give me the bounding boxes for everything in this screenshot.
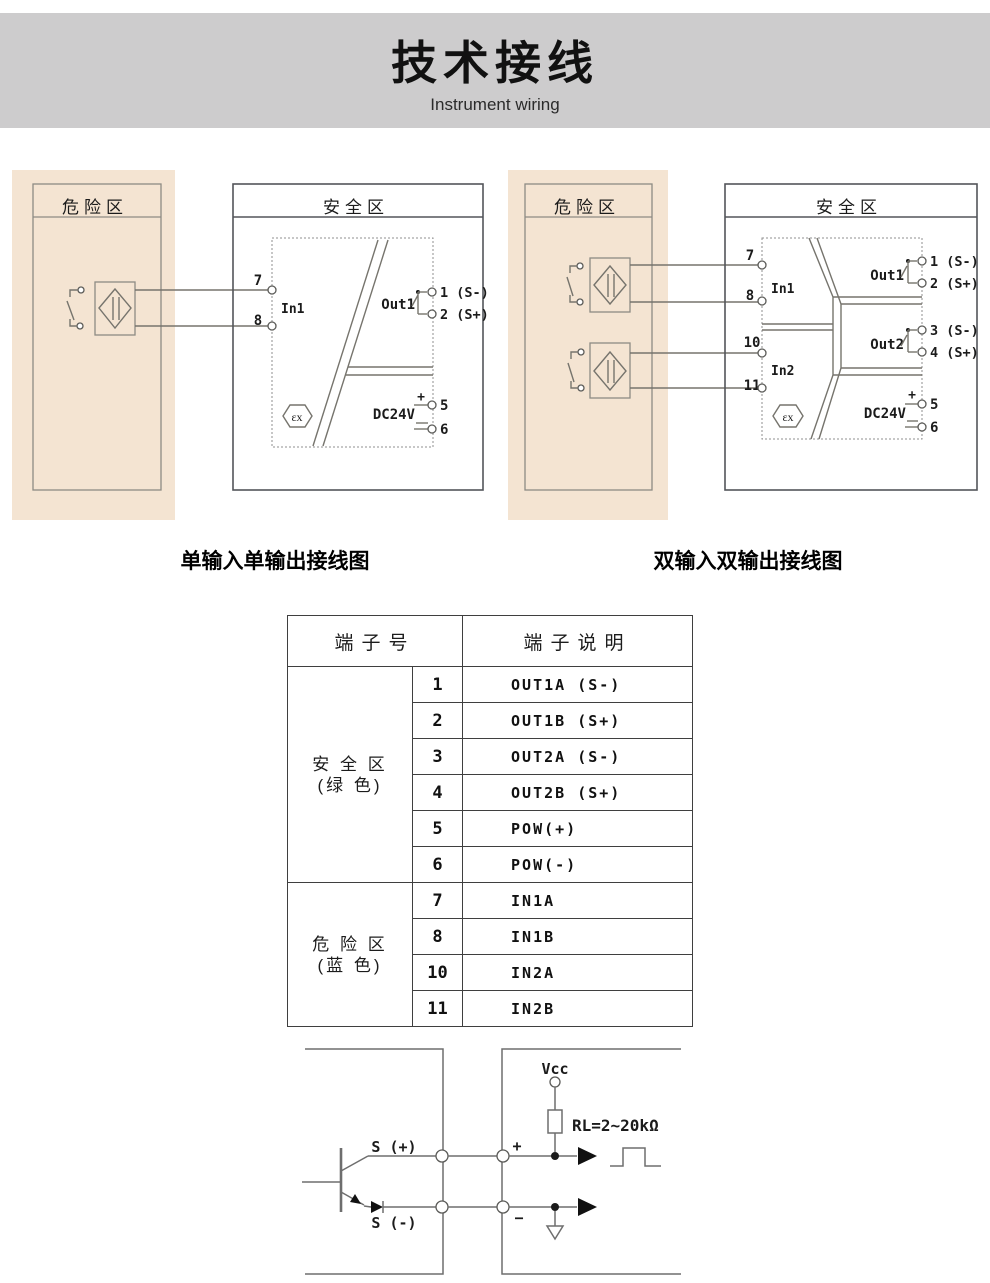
terminal-5-label: 5	[440, 398, 448, 414]
power-plus-sign: +	[417, 390, 425, 405]
terminal-number: 1	[413, 667, 463, 703]
input-2-label: In2	[771, 364, 794, 379]
terminal-6-circle	[918, 423, 926, 431]
page-title: 技术接线	[391, 27, 599, 93]
input-terminals: 7 In1 8 10 In2 11	[744, 248, 795, 394]
terminal-6-label: 6	[440, 422, 448, 438]
rl-value-label: RL=2~20kΩ	[572, 1116, 659, 1135]
safe-zone-group-cell: 安 全 区 (绿 色)	[288, 667, 413, 883]
pulse-waveform-icon	[610, 1148, 661, 1166]
terminal-2-circle	[918, 279, 926, 287]
terminal-8-circle	[758, 297, 766, 305]
vcc-terminal-circle	[550, 1077, 560, 1087]
terminal-desc: IN2B	[463, 991, 693, 1027]
header-band: 技术接线 Instrument wiring	[0, 13, 990, 128]
output-circuit-diagram: S (+) S (-) + − Vcc RL=2~20kΩ	[280, 1040, 720, 1283]
load-terminal-minus-circle	[497, 1201, 509, 1213]
terminal-1-circle	[918, 257, 926, 265]
page-subtitle: Instrument wiring	[430, 95, 559, 115]
input-1-label: In1	[281, 302, 305, 317]
dual-io-wiring-diagram: 危险区	[500, 160, 990, 580]
output-1-terminals: Out1 1 (S-) 2 (S+)	[381, 285, 489, 323]
terminal-desc: IN1A	[463, 883, 693, 919]
safe-zone-right: 安全区 7 In1 8 10 In2 11 Out1	[725, 184, 979, 490]
power-plus-sign: +	[908, 388, 916, 403]
hazard-zone-right: 危险区	[508, 170, 758, 520]
caption-single-io: 单输入单输出接线图	[115, 545, 435, 575]
terminal-desc: OUT1B (S+)	[463, 703, 693, 739]
s-plus-label: S (+)	[371, 1138, 416, 1156]
hazard-zone-label: 危险区	[554, 198, 620, 217]
power-label: DC24V	[373, 407, 416, 423]
hazard-zone-left: 危险区	[12, 170, 268, 520]
terminal-7-label: 7	[254, 273, 262, 289]
terminal-number: 7	[413, 883, 463, 919]
safe-zone-label: 安全区	[816, 198, 882, 217]
terminal-5-circle	[428, 401, 436, 409]
transistor-icon	[302, 1148, 368, 1212]
vcc-label: Vcc	[541, 1060, 568, 1078]
terminal-number: 5	[413, 811, 463, 847]
hazard-zone-group-cell: 危 险 区 (蓝 色)	[288, 883, 413, 1027]
power-terminals: DC24V + 5 6	[864, 388, 939, 436]
signal-arrow-plus-icon	[578, 1147, 597, 1165]
terminal-desc: POW(-)	[463, 847, 693, 883]
pullup-resistor: Vcc RL=2~20kΩ	[541, 1060, 658, 1152]
terminal-7-label: 7	[746, 248, 754, 264]
terminal-desc: IN1B	[463, 919, 693, 955]
hazard-zone-background	[12, 170, 175, 520]
terminal-number: 4	[413, 775, 463, 811]
terminal-10-label: 10	[744, 335, 761, 351]
terminal-7-circle	[268, 286, 276, 294]
terminal-desc: OUT2A (S-)	[463, 739, 693, 775]
group-label-line1: 安 全 区	[288, 754, 412, 775]
terminal-1-label: 1 (S-)	[930, 254, 979, 270]
terminal-8-label: 8	[254, 313, 262, 329]
output-2-terminals: Out2 3 (S-) 4 (S+)	[870, 323, 979, 361]
load-terminal-plus-circle	[497, 1150, 509, 1162]
power-terminals: DC24V + 5 6	[373, 390, 449, 438]
sensor-side-box	[305, 1049, 443, 1274]
terminal-number: 2	[413, 703, 463, 739]
terminal-1-circle	[428, 288, 436, 296]
table-header-row: 端子号 端子说明	[288, 616, 693, 667]
terminal-number: 6	[413, 847, 463, 883]
table-row: 安 全 区 (绿 色) 1 OUT1A (S-)	[288, 667, 693, 703]
terminal-2-label: 2 (S+)	[930, 276, 979, 292]
plus-sign: +	[512, 1137, 521, 1155]
terminal-desc: OUT2B (S+)	[463, 775, 693, 811]
power-label: DC24V	[864, 406, 907, 422]
load-side-box	[502, 1049, 681, 1274]
terminal-desc: OUT1A (S-)	[463, 667, 693, 703]
minus-sign: −	[514, 1209, 523, 1227]
diode-icon	[364, 1201, 436, 1213]
terminal-number: 3	[413, 739, 463, 775]
input-terminals: 7 In1 8	[254, 273, 305, 330]
terminal-5-circle	[918, 400, 926, 408]
sensor-terminal-plus-circle	[436, 1150, 448, 1162]
terminal-2-label: 2 (S+)	[440, 307, 489, 323]
terminal-8-circle	[268, 322, 276, 330]
safe-zone-label: 安全区	[323, 198, 389, 217]
terminal-4-circle	[918, 348, 926, 356]
terminal-11-circle	[758, 384, 766, 392]
safe-zone-left: 安全区 7 In1 8 Out1	[233, 184, 489, 490]
junction-dot-plus	[551, 1152, 559, 1160]
terminal-5-label: 5	[930, 397, 938, 413]
resistor-icon	[548, 1110, 562, 1133]
terminal-desc: IN2A	[463, 955, 693, 991]
terminal-6-circle	[428, 425, 436, 433]
group-label-line2: (绿 色)	[288, 775, 412, 796]
group-label-line2: (蓝 色)	[288, 955, 412, 976]
terminal-desc-header: 端子说明	[463, 616, 693, 667]
terminal-3-label: 3 (S-)	[930, 323, 979, 339]
terminal-7-circle	[758, 261, 766, 269]
hazard-zone-background	[508, 170, 668, 520]
s-minus-label: S (-)	[371, 1214, 416, 1232]
terminal-table: 端子号 端子说明 安 全 区 (绿 色) 1 OUT1A (S-) 2 OUT1…	[287, 615, 693, 1027]
ex-icon-text: εx	[291, 410, 302, 424]
signal-arrow-minus-icon	[578, 1198, 597, 1216]
group-label-line1: 危 险 区	[288, 934, 412, 955]
ex-certification-icon: εx	[283, 405, 312, 427]
terminal-number: 11	[413, 991, 463, 1027]
terminal-6-label: 6	[930, 420, 938, 436]
table-row: 危 险 区 (蓝 色) 7 IN1A	[288, 883, 693, 919]
terminal-4-label: 4 (S+)	[930, 345, 979, 361]
terminal-8-label: 8	[746, 288, 754, 304]
junction-dot-minus	[551, 1203, 559, 1211]
terminal-2-circle	[428, 310, 436, 318]
terminal-number: 10	[413, 955, 463, 991]
single-io-wiring-diagram: 危险区 安全区	[0, 160, 500, 580]
out2-label: Out2	[870, 337, 904, 353]
terminal-desc: POW(+)	[463, 811, 693, 847]
output-1-terminals: Out1 1 (S-) 2 (S+)	[870, 254, 979, 292]
ground-icon	[547, 1211, 563, 1239]
ex-icon-text: εx	[782, 410, 793, 424]
terminal-10-circle	[758, 349, 766, 357]
out1-label: Out1	[870, 268, 904, 284]
terminal-number-header: 端子号	[288, 616, 463, 667]
terminal-number: 8	[413, 919, 463, 955]
out1-label: Out1	[381, 297, 415, 313]
terminal-3-circle	[918, 326, 926, 334]
hazard-zone-label: 危险区	[62, 198, 128, 217]
sensor-terminal-minus-circle	[436, 1201, 448, 1213]
ex-certification-icon: εx	[773, 405, 803, 427]
caption-dual-io: 双输入双输出接线图	[588, 545, 908, 575]
instrument-wiring-page: 技术接线 Instrument wiring 危险区	[0, 0, 990, 1283]
terminal-1-label: 1 (S-)	[440, 285, 489, 301]
input-1-label: In1	[771, 282, 795, 297]
